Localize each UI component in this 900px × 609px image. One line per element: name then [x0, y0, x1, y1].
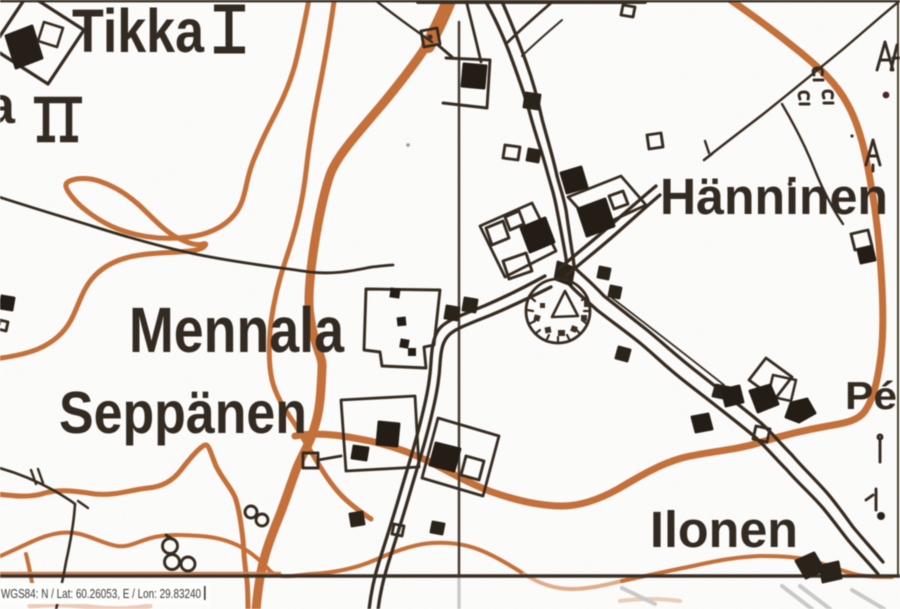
svg-text:Seppänen: Seppänen — [59, 380, 307, 446]
svg-text:Mennala: Mennala — [129, 294, 344, 366]
svg-text:a: a — [0, 77, 16, 135]
svg-text:Hänninen: Hänninen — [660, 168, 888, 225]
svg-text:WGS84: N / Lat: 60.26053, E /: WGS84: N / Lat: 60.26053, E / Lon: 29.83… — [1, 586, 201, 601]
svg-text:Tikka: Tikka — [72, 0, 205, 65]
svg-text:Pé: Pé — [845, 375, 897, 418]
svg-text:Ilonen: Ilonen — [650, 501, 798, 558]
